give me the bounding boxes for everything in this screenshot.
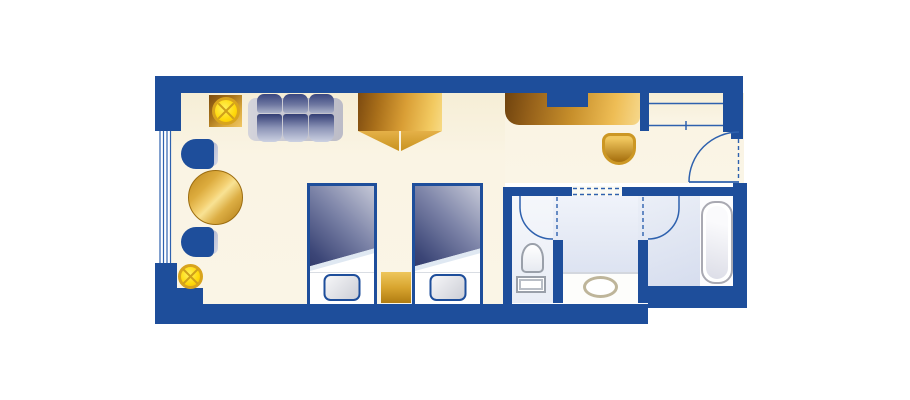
wall-toilet-vanity xyxy=(553,240,563,303)
armchair-back xyxy=(181,227,214,257)
vanity-sink xyxy=(583,276,618,298)
twin-bed-1 xyxy=(307,183,377,307)
wall-bath-top-right xyxy=(622,187,743,196)
lounge-chair-seat-right xyxy=(401,131,442,151)
toilet xyxy=(516,243,546,294)
sheet-line xyxy=(310,272,374,273)
wall-top xyxy=(155,76,743,93)
window-armchair-1 xyxy=(181,139,218,169)
sofa-cushion xyxy=(283,94,308,113)
vanity-opening xyxy=(572,186,622,196)
toilet-tank-lid xyxy=(519,279,543,290)
wall-door-jamb xyxy=(731,131,743,139)
window-armchair-2 xyxy=(181,227,218,257)
armchair-back xyxy=(181,139,214,169)
lounge-chair xyxy=(358,93,442,153)
wall-closet-left xyxy=(640,93,649,131)
floor-plan xyxy=(0,0,910,400)
sofa-cushion xyxy=(309,94,334,113)
lounge-chair-seat-left xyxy=(358,131,399,151)
tv-niche xyxy=(547,93,588,107)
sofa-seat xyxy=(257,114,282,142)
wall-top-right-block xyxy=(723,76,743,132)
nightstand xyxy=(381,272,411,303)
wall-vanity-shower xyxy=(638,240,648,303)
sofa-cushion xyxy=(257,94,282,113)
wall-bath-top-left xyxy=(503,187,572,196)
floor-lamp-icon xyxy=(178,264,203,289)
round-table xyxy=(188,170,243,225)
vanity-area-floor xyxy=(553,196,638,272)
wall-shower-bottom xyxy=(648,286,747,308)
sofa-seat xyxy=(283,114,308,142)
toilet-bowl xyxy=(521,243,544,273)
sofa-seat xyxy=(309,114,334,142)
wall-top-left-cap xyxy=(155,76,181,131)
pillow xyxy=(429,274,466,301)
wall-bottom xyxy=(155,304,648,324)
table-lamp-icon xyxy=(212,97,240,125)
sofa xyxy=(249,94,344,143)
window-glazing-lines xyxy=(160,131,171,263)
bathtub-basin xyxy=(706,206,728,279)
sheet-line xyxy=(415,272,480,273)
bathtub xyxy=(701,201,733,284)
lounge-chair-back xyxy=(358,93,442,131)
twin-bed-2 xyxy=(412,183,483,307)
pillow xyxy=(324,274,361,301)
wall-bath-left xyxy=(503,187,512,323)
